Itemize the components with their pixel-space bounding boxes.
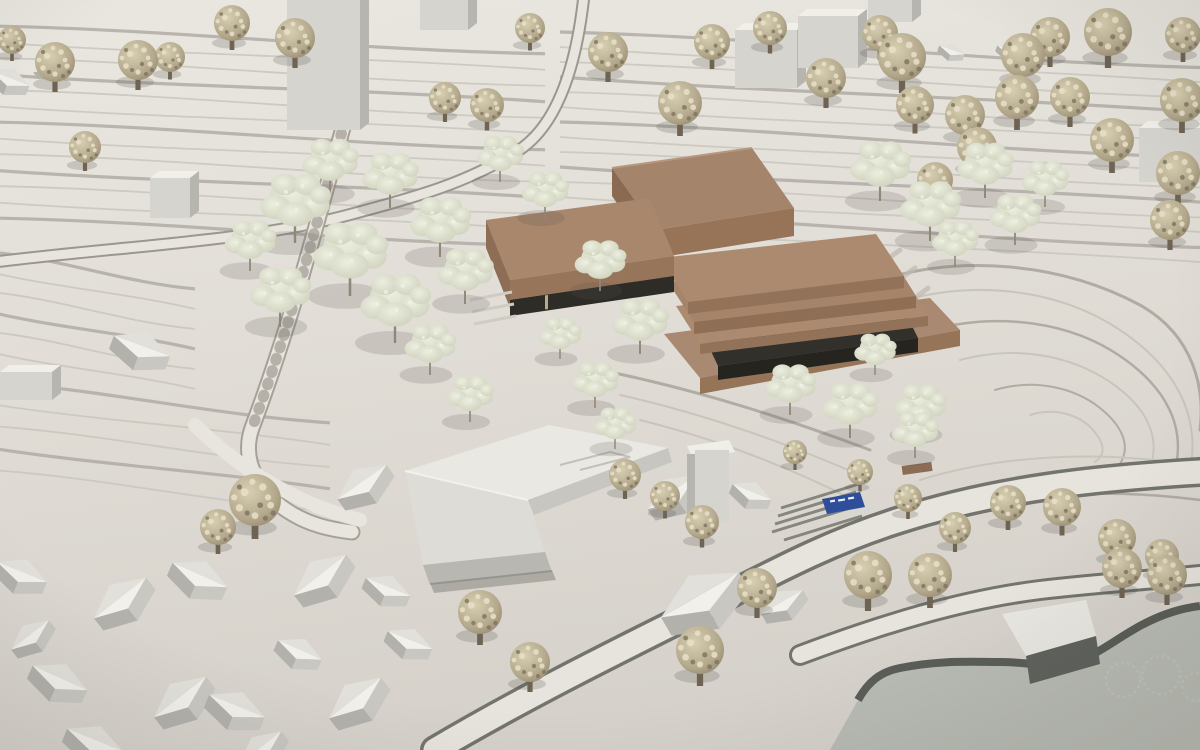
vignette-overlay [0,0,1200,750]
architectural-model-scene: Architectural site model photograph [0,0,1200,750]
model-photograph: Architectural site model photograph [0,0,1200,750]
